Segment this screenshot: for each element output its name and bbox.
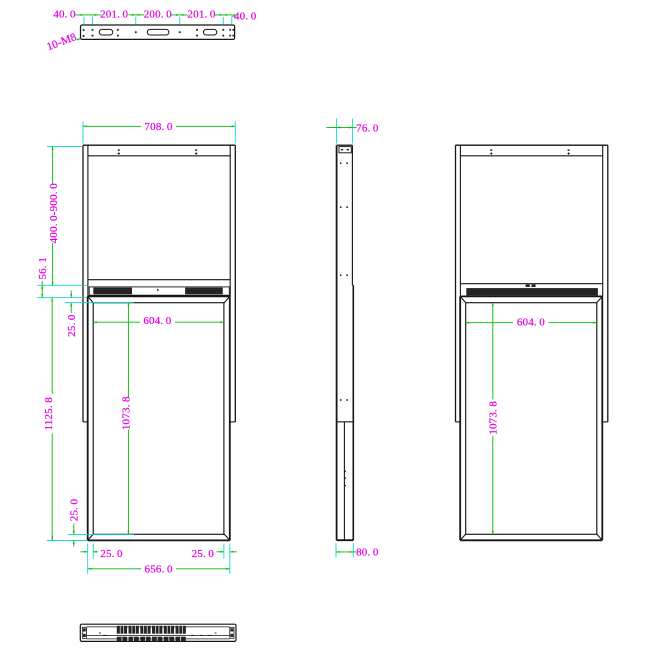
- svg-text:56. 1: 56. 1: [37, 257, 49, 279]
- svg-text:25. 0: 25. 0: [66, 314, 78, 337]
- svg-text:40. 0: 40. 0: [234, 10, 257, 22]
- svg-text:76. 0: 76. 0: [356, 122, 379, 134]
- svg-text:1073. 8: 1073. 8: [120, 396, 132, 430]
- svg-text:10-M8: 10-M8: [45, 31, 78, 53]
- svg-text:201. 0: 201. 0: [187, 9, 215, 21]
- svg-text:1073. 8: 1073. 8: [488, 401, 500, 435]
- svg-text:80. 0: 80. 0: [356, 546, 379, 558]
- svg-text:201. 0: 201. 0: [100, 9, 128, 21]
- svg-text:656. 0: 656. 0: [145, 563, 173, 575]
- svg-text:40. 0: 40. 0: [53, 9, 76, 21]
- svg-text:604. 0: 604. 0: [143, 315, 171, 327]
- svg-text:604. 0: 604. 0: [517, 317, 545, 329]
- svg-text:1125. 8: 1125. 8: [43, 397, 55, 431]
- svg-text:25. 0: 25. 0: [100, 548, 123, 560]
- svg-text:25. 0: 25. 0: [192, 548, 215, 560]
- svg-text:400. 0-900. 0: 400. 0-900. 0: [48, 183, 60, 243]
- svg-text:25. 0: 25. 0: [69, 498, 81, 521]
- svg-text:200. 0: 200. 0: [144, 9, 172, 21]
- svg-text:708. 0: 708. 0: [144, 121, 172, 133]
